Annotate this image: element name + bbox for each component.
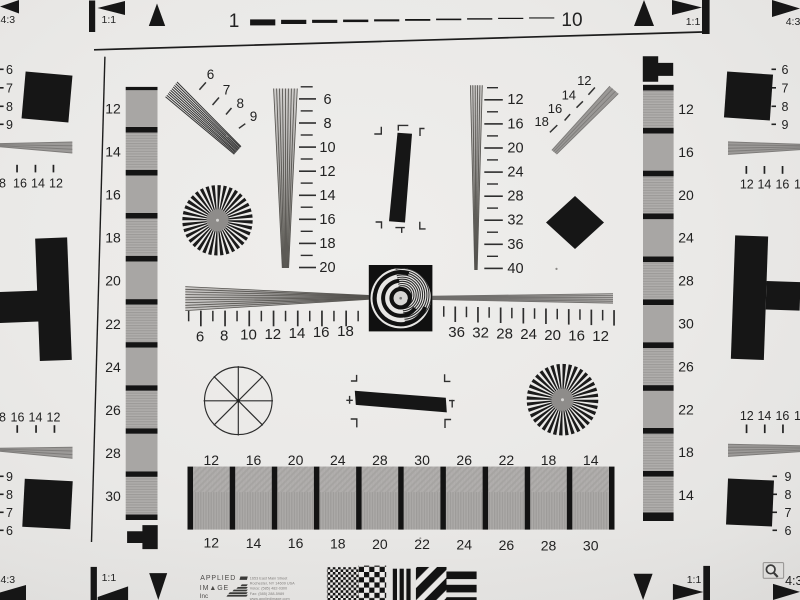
svg-text:14: 14	[105, 144, 121, 160]
svg-text:12: 12	[47, 411, 61, 425]
svg-text:8: 8	[236, 96, 244, 111]
svg-text:8: 8	[323, 116, 331, 132]
svg-text:18: 18	[319, 236, 335, 252]
svg-text:Inc: Inc	[200, 593, 208, 600]
svg-text:28: 28	[105, 445, 121, 461]
svg-text:28: 28	[496, 325, 513, 342]
svg-text:26: 26	[499, 537, 515, 553]
svg-text:7: 7	[782, 82, 789, 96]
svg-text:6: 6	[6, 63, 13, 77]
svg-text:14: 14	[757, 409, 771, 423]
svg-text:30: 30	[414, 452, 430, 468]
svg-text:32: 32	[507, 213, 523, 229]
svg-text:12: 12	[740, 177, 754, 191]
svg-text:1:1: 1:1	[102, 14, 117, 26]
svg-text:1653 East Main Street: 1653 East Main Street	[250, 576, 289, 580]
svg-text:16: 16	[11, 411, 25, 425]
svg-text:8: 8	[6, 100, 13, 114]
svg-text:26: 26	[105, 402, 121, 418]
svg-text:9: 9	[6, 118, 13, 132]
svg-text:36: 36	[448, 324, 465, 341]
svg-text:28: 28	[507, 189, 523, 205]
svg-text:22: 22	[105, 316, 121, 332]
svg-text:1:1: 1:1	[687, 574, 702, 586]
svg-text:4:3: 4:3	[1, 14, 16, 26]
svg-text:6: 6	[785, 524, 792, 538]
svg-text:1: 1	[794, 177, 800, 191]
svg-text:Rochester, NY 14609 USA: Rochester, NY 14609 USA	[250, 581, 295, 585]
svg-text:16: 16	[105, 187, 121, 203]
svg-text:1:1: 1:1	[102, 572, 117, 584]
svg-text:12: 12	[740, 409, 754, 423]
svg-text:14: 14	[583, 452, 599, 468]
svg-text:6: 6	[323, 92, 331, 108]
svg-text:32: 32	[472, 325, 489, 342]
svg-text:8: 8	[220, 328, 228, 345]
svg-text:16: 16	[319, 212, 335, 228]
svg-text:20: 20	[372, 536, 388, 552]
svg-text:14: 14	[246, 535, 262, 551]
svg-text:14: 14	[678, 487, 694, 503]
svg-text:22: 22	[499, 452, 515, 468]
svg-text:IM▲GE: IM▲GE	[200, 585, 229, 592]
svg-text:12: 12	[49, 177, 63, 191]
svg-text:12: 12	[204, 452, 220, 468]
svg-text:20: 20	[105, 273, 121, 289]
svg-text:30: 30	[105, 488, 121, 504]
svg-text:12: 12	[264, 326, 281, 343]
svg-text:16: 16	[568, 328, 585, 345]
svg-text:12: 12	[678, 101, 694, 117]
svg-text:4:3: 4:3	[786, 16, 800, 28]
svg-text:8: 8	[6, 488, 13, 502]
svg-text:20: 20	[319, 260, 335, 276]
svg-text:9: 9	[782, 118, 789, 132]
svg-text:14: 14	[757, 177, 771, 191]
svg-text:20: 20	[507, 140, 523, 156]
svg-text:9: 9	[785, 470, 792, 484]
svg-text:24: 24	[456, 537, 472, 553]
svg-text:7: 7	[6, 82, 13, 96]
svg-text:28: 28	[372, 452, 388, 468]
svg-text:14: 14	[29, 411, 43, 425]
svg-text:12: 12	[507, 92, 523, 108]
svg-text:4:3: 4:3	[1, 574, 16, 586]
svg-text:16: 16	[288, 535, 304, 551]
svg-text:6: 6	[196, 329, 204, 346]
svg-text:36: 36	[507, 237, 523, 253]
svg-text:8: 8	[785, 488, 792, 502]
svg-text:6: 6	[207, 67, 215, 82]
svg-text:24: 24	[678, 230, 694, 246]
svg-text:10: 10	[319, 140, 335, 156]
svg-text:14: 14	[562, 87, 576, 102]
svg-text:7: 7	[785, 506, 792, 520]
svg-text:1: 1	[794, 409, 800, 423]
svg-text:20: 20	[288, 452, 304, 468]
svg-text:18: 18	[337, 323, 354, 340]
svg-text:14: 14	[31, 177, 45, 191]
svg-text:18: 18	[330, 536, 346, 552]
svg-text:12: 12	[204, 535, 220, 551]
svg-text:30: 30	[583, 538, 599, 554]
svg-text:1:1: 1:1	[686, 16, 701, 28]
svg-text:8: 8	[0, 177, 6, 191]
svg-text:Voice: (585) 482-0300: Voice: (585) 482-0300	[250, 587, 287, 591]
svg-text:7: 7	[6, 506, 13, 520]
svg-text:6: 6	[782, 63, 789, 77]
svg-text:10: 10	[561, 10, 582, 31]
svg-text:9: 9	[6, 470, 13, 484]
svg-text:16: 16	[313, 324, 330, 341]
svg-text:12: 12	[105, 101, 121, 117]
svg-text:16: 16	[678, 144, 694, 160]
svg-text:18: 18	[105, 230, 121, 246]
svg-text:12: 12	[577, 73, 591, 88]
svg-text:22: 22	[414, 536, 430, 552]
svg-text:6: 6	[6, 524, 13, 538]
svg-text:Fax: (585) 288-5989: Fax: (585) 288-5989	[250, 592, 284, 596]
svg-text:28: 28	[541, 537, 557, 553]
svg-text:16: 16	[775, 409, 789, 423]
svg-text:8: 8	[0, 411, 6, 425]
svg-text:7: 7	[223, 82, 231, 97]
svg-text:14: 14	[289, 325, 306, 342]
svg-text:24: 24	[520, 326, 537, 343]
svg-text:12: 12	[592, 328, 609, 345]
svg-text:16: 16	[13, 177, 27, 191]
svg-text:18: 18	[534, 114, 548, 129]
svg-text:16: 16	[507, 116, 523, 132]
svg-text:24: 24	[105, 359, 121, 375]
svg-text:18: 18	[541, 452, 557, 468]
svg-text:26: 26	[456, 452, 472, 468]
svg-text:20: 20	[544, 327, 561, 344]
svg-text:8: 8	[782, 100, 789, 114]
svg-text:40: 40	[507, 261, 523, 277]
svg-text:4:3: 4:3	[785, 574, 800, 588]
svg-text:24: 24	[507, 165, 523, 181]
svg-text:10: 10	[240, 327, 257, 344]
svg-text:16: 16	[775, 177, 789, 191]
svg-text:9: 9	[250, 109, 258, 124]
svg-text:30: 30	[678, 316, 694, 332]
svg-text:18: 18	[678, 444, 694, 460]
svg-text:28: 28	[678, 273, 694, 289]
svg-text:26: 26	[678, 358, 694, 374]
svg-text:16: 16	[246, 452, 262, 468]
svg-text:1: 1	[229, 11, 240, 32]
svg-text:20: 20	[678, 187, 694, 203]
svg-text:12: 12	[319, 164, 335, 180]
svg-text:APPLIED: APPLIED	[200, 575, 236, 582]
svg-text:16: 16	[548, 101, 562, 116]
svg-text:14: 14	[319, 188, 335, 204]
svg-text:24: 24	[330, 452, 346, 468]
svg-text:22: 22	[678, 401, 694, 417]
